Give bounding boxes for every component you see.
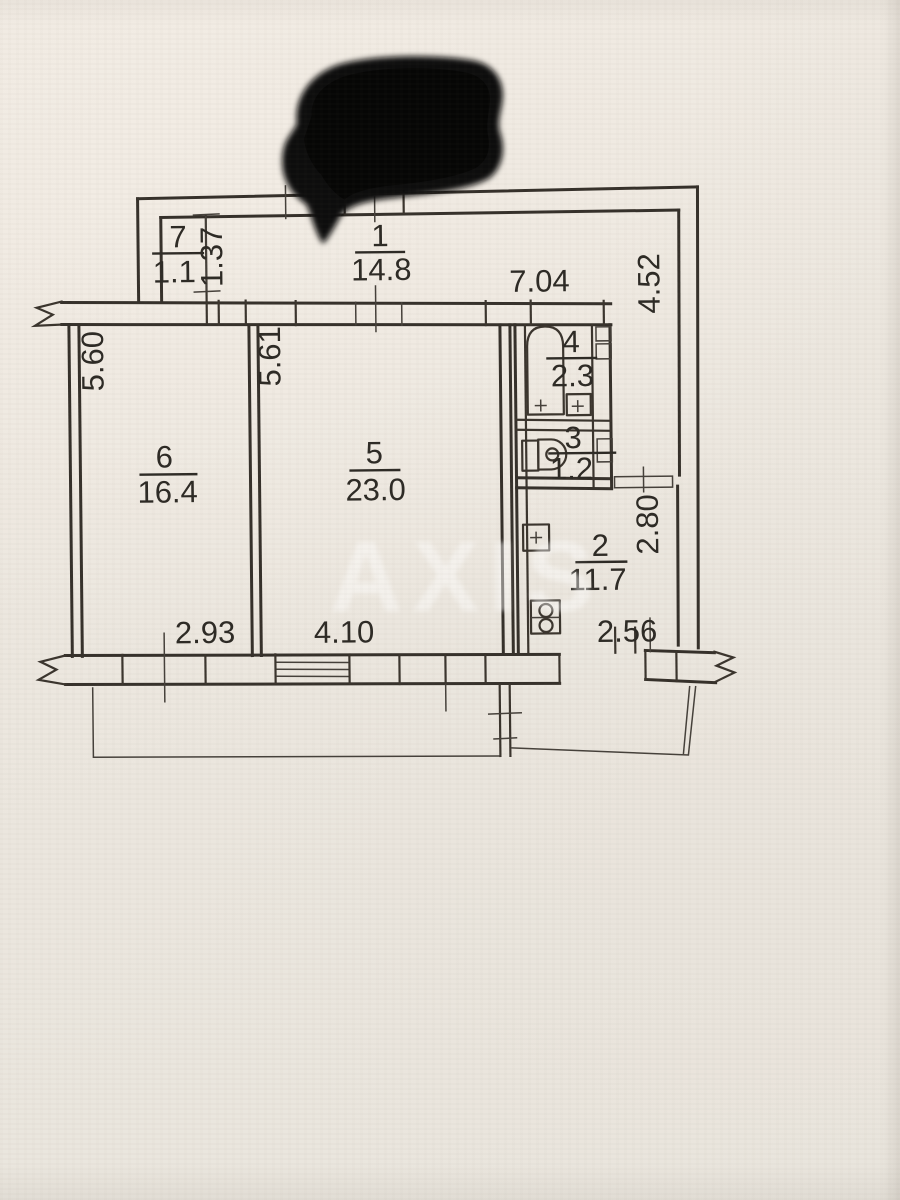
balcony-door-line-2 [276,669,348,671]
room-3-number: 3 [564,420,582,455]
dim-tick-closet-bottom [194,291,221,292]
balcony-door-line-1 [276,662,348,664]
mid-band-lower [62,319,611,331]
dim-kitchen-depth: 2.80 [630,494,666,555]
bath-sink [567,394,591,415]
room-6-number: 6 [155,439,173,474]
wall-top-inner [161,210,679,217]
dim-room5-width: 4.10 [314,614,375,650]
room5-wall-right-inner [510,325,513,654]
right-balcony-outline [511,686,697,757]
axis-tick-room6 [164,632,165,702]
room-2-area: 11.7 [568,562,626,598]
stove [531,600,560,633]
kitchen-bottom-lower [646,679,716,684]
floor-plan-drawing: 1 14.8 7 1.1 6 16.4 5 23.0 4 2.3 3 1.2 2 [0,0,900,1200]
room-1-area: 14.8 [351,252,412,288]
break-symbol-bottom-left [38,656,65,685]
toilet-tank [522,441,538,471]
scanned-floor-plan-photo: 1 14.8 7 1.1 6 16.4 5 23.0 4 2.3 3 1.2 2 [0,0,900,1200]
dim-hall-depth: 4.52 [631,253,667,314]
room-3-area: 1.2 [550,451,593,486]
balcony-door-line-3 [277,676,349,678]
break-symbol-bottom-right [714,652,734,682]
room-5-fraction-bar [349,470,400,471]
dim-room6-width: 2.93 [175,615,236,651]
kitchen-wall-left-outer [517,490,519,654]
dim-tick-closet-top [193,214,220,215]
room-1-number: 1 [371,218,389,253]
room-2-number: 2 [591,528,609,563]
room5-wall-right-outer [500,325,503,654]
balcony-pier-tick-2 [493,738,517,739]
left-balcony-outline [93,683,501,760]
room-7-number: 7 [169,219,187,254]
balcony-pier-left-line [500,685,501,756]
dim-closet-depth: 1.37 [194,227,230,288]
wall-right-inner-kitchen [677,486,680,645]
mid-band-upper [62,297,611,310]
faucet-cross-1 [535,399,547,411]
wetblock-bottom-lower [517,487,612,490]
wall-right-outer [693,187,702,648]
dim-hall-width: 7.04 [509,263,570,299]
wetblock-wall-left-outer [515,325,517,488]
room-4-area: 2.3 [551,358,594,393]
stove-burner-1 [539,604,552,617]
balcony-door-room5 [275,654,349,685]
wall-left-outer [138,199,139,302]
room-5-number: 5 [365,435,383,470]
balcony-pier-tick-1 [488,713,522,714]
dim-room6-depth: 5.60 [75,331,111,392]
room6-wall-left-outer [69,325,72,656]
dim-kitchen-width: 2.56 [597,613,658,649]
room-5-area: 23.0 [345,472,406,508]
room-6-area: 16.4 [137,474,198,510]
kitchen-wall-left-inner [527,490,529,654]
room-7-area: 1.1 [153,254,196,289]
stove-burner-2 [539,619,552,632]
break-symbol-mid-left [35,302,62,326]
room-4-number: 4 [562,324,580,359]
wall-right-inner-hall [677,210,682,475]
dim-room5-depth: 5.61 [252,326,288,387]
plan-group: 1 14.8 7 1.1 6 16.4 5 23.0 4 2.3 3 1.2 2 [32,53,735,762]
kitchen-bottom-upper [645,650,714,654]
balcony-pier-right-line [510,685,511,756]
faucet-cross-2 [572,400,584,412]
balconies [93,681,697,761]
